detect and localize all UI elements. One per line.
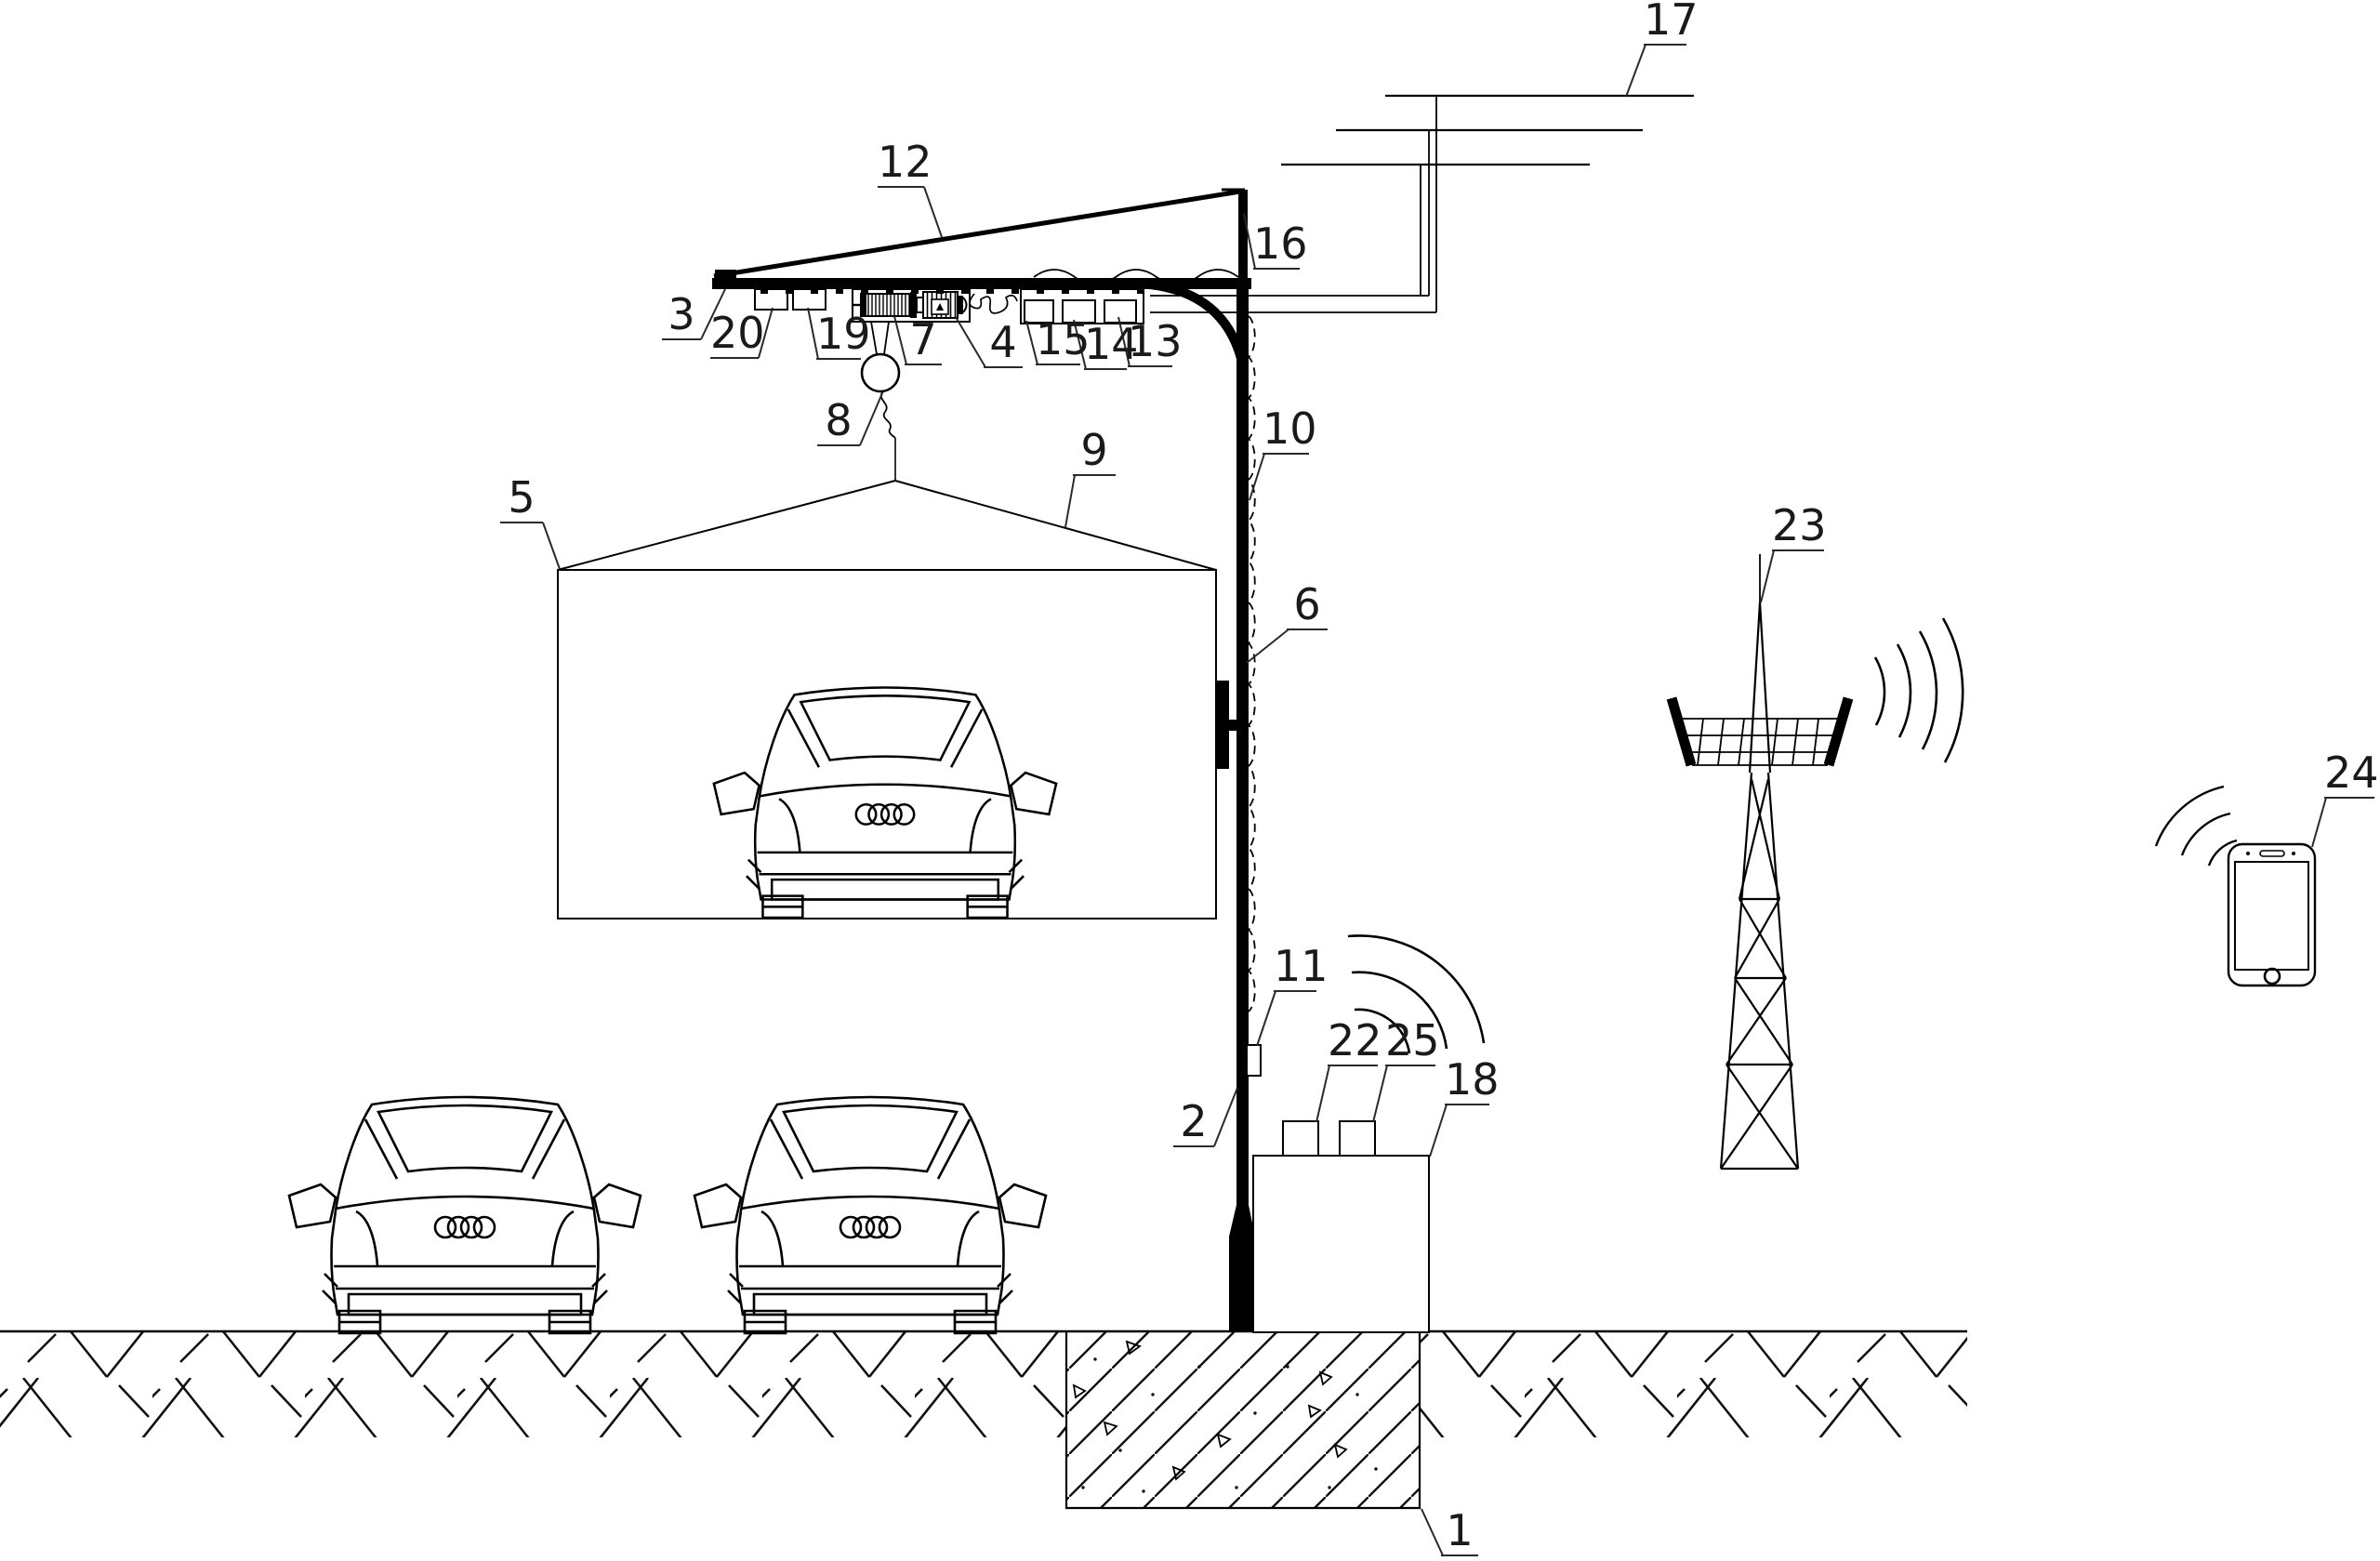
part-label-15: 15 — [1036, 316, 1080, 365]
part-label-16: 16 — [1253, 220, 1300, 270]
part-label-18: 18 — [1445, 1056, 1489, 1105]
part-label-4: 4 — [984, 319, 1023, 368]
part-label-23: 23 — [1772, 502, 1824, 551]
part-label-6: 6 — [1287, 581, 1328, 630]
patent-figure: 123456789101112131415161718192022232425 — [0, 0, 2380, 1561]
part-label-14: 14 — [1084, 321, 1127, 370]
part-label-5: 5 — [500, 474, 543, 523]
part-label-19: 19 — [816, 311, 861, 360]
part-label-1: 1 — [1441, 1507, 1478, 1556]
part-label-11: 11 — [1274, 943, 1316, 992]
part-label-7: 7 — [905, 316, 942, 365]
part-label-12: 12 — [878, 139, 924, 188]
part-label-24: 24 — [2324, 749, 2374, 799]
part-label-25: 25 — [1385, 1017, 1435, 1066]
part-label-22: 22 — [1328, 1017, 1378, 1066]
part-label-8: 8 — [817, 397, 860, 446]
part-label-20: 20 — [710, 310, 759, 359]
part-label-2: 2 — [1173, 1098, 1214, 1147]
part-label-10: 10 — [1263, 405, 1309, 455]
part-label-9: 9 — [1073, 427, 1116, 476]
labels-layer: 123456789101112131415161718192022232425 — [0, 0, 2380, 1561]
part-label-17: 17 — [1644, 0, 1686, 46]
part-label-3: 3 — [662, 291, 701, 340]
